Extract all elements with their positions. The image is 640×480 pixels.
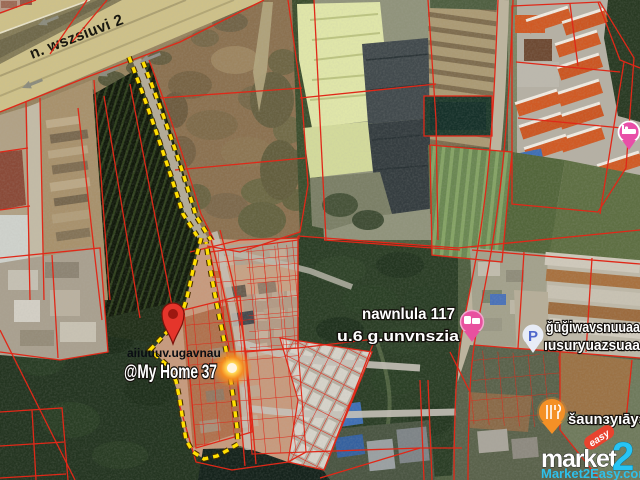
svg-text:P: P xyxy=(528,328,538,345)
svg-text:u.6 g.unvnszia: u.6 g.unvnszia xyxy=(337,328,460,345)
svg-text:ğūğiwavsnuuaa: ğūğiwavsnuuaa xyxy=(546,319,640,336)
svg-text:ıusuryuazsuaa: ıusuryuazsuaa xyxy=(544,337,640,354)
svg-text:@My Home 37: @My Home 37 xyxy=(124,362,217,383)
svg-text:aiiuuuv.ugavnau: aiiuuuv.ugavnau xyxy=(127,346,221,360)
svg-text:nawnlula 117: nawnlula 117 xyxy=(362,306,455,323)
svg-text:Market2Easy.com: Market2Easy.com xyxy=(541,466,640,480)
svg-text:šaunзyıāyз: šaunзyıāyз xyxy=(568,411,640,428)
